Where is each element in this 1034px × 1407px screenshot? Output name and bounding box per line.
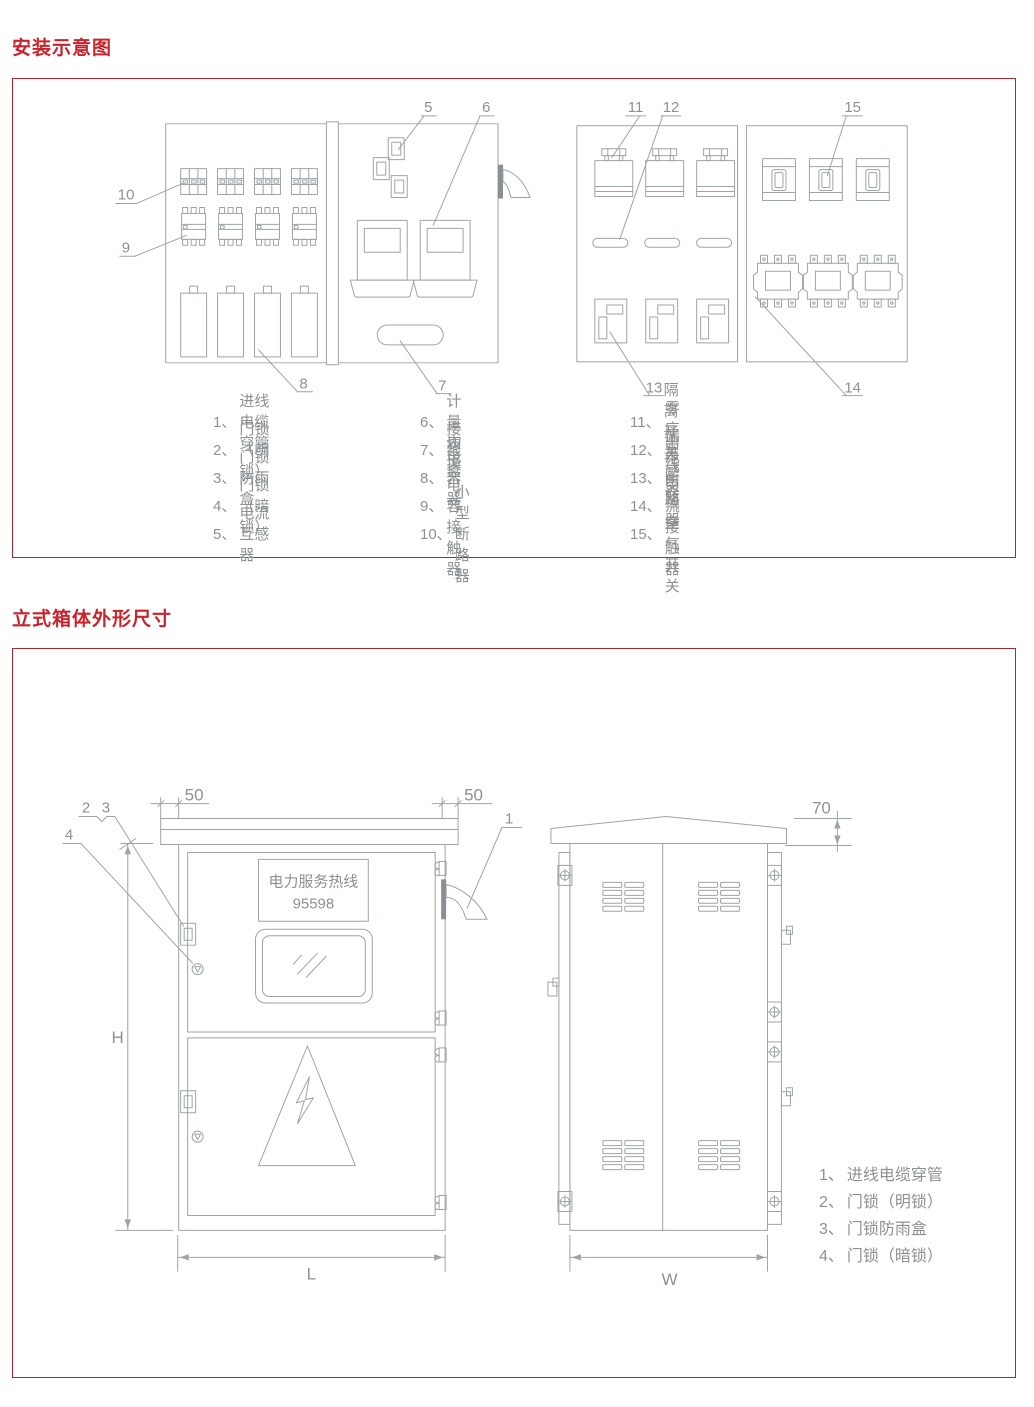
lower-door <box>188 1038 436 1216</box>
current-transformer-icon <box>373 158 389 180</box>
capacitor-contactor-icon <box>219 207 243 245</box>
louver-vent-icon <box>603 1141 644 1170</box>
dim-length: L <box>307 1264 316 1283</box>
callout-9: 9 <box>122 239 130 256</box>
door-hinge-icon <box>435 1048 446 1062</box>
energy-meter-icon <box>413 220 477 297</box>
mini-breaker-icon <box>181 169 207 195</box>
catalog-page: 安装示意图 <box>0 0 1034 1407</box>
hotline-text: 电力服务热线 <box>269 873 359 890</box>
capacitor-icon <box>218 286 244 357</box>
service-hotline-plate: 电力服务热线 95598 <box>259 859 369 921</box>
callout-7: 7 <box>438 378 446 395</box>
air-switch-icon <box>763 159 796 201</box>
isolator-switch-icon <box>595 149 633 197</box>
ac-contactor-icon <box>754 255 803 307</box>
leakage-breaker-icon <box>646 299 678 343</box>
warning-triangle-icon <box>259 1046 356 1166</box>
callout-12: 12 <box>663 99 680 116</box>
cabinet-roof-side <box>551 817 787 844</box>
cable-entry-pipe-icon <box>441 879 487 919</box>
energy-meter-icon <box>350 220 414 297</box>
zero-sequence-ct-icon <box>697 238 732 247</box>
callout-6: 6 <box>482 99 490 116</box>
cabinet-side-view <box>548 817 793 1231</box>
legend-item: 2、门锁（明锁） <box>819 1186 943 1213</box>
section2-title: 立式箱体外形尺寸 <box>12 604 172 631</box>
left-hinge-strip <box>559 852 570 1224</box>
door-hinge-icon <box>435 861 446 875</box>
isolator-switch-icon <box>646 149 684 197</box>
louver-vent-icon <box>603 882 644 911</box>
door-hinge-icon <box>435 1195 446 1209</box>
current-transformer-icon <box>388 138 404 160</box>
cabinet-legend: 1、进线电缆穿管 2、门锁（明锁） 3、门锁防雨盒 4、门锁（暗锁） <box>819 1159 943 1267</box>
zero-sequence-ct-icon <box>593 238 628 247</box>
door-latch-icon <box>781 926 792 944</box>
callout-4: 4 <box>65 826 73 843</box>
right-hinge-strip <box>767 852 781 1224</box>
capacitor-icon <box>181 286 207 357</box>
dim-width: W <box>662 1270 678 1289</box>
dim-height: H <box>112 1028 124 1047</box>
legend-column-2: 6、计量表 7、接线盒 8、电容器 9、切换电容接触器 10、小型断路器 <box>420 407 470 547</box>
leakage-breaker-icon <box>595 299 627 343</box>
switch-outgoing-cabinet <box>577 126 907 362</box>
diagram1-callouts: 10 9 8 5 6 7 11 12 15 <box>116 99 863 397</box>
install-diagram: 10 9 8 5 6 7 11 12 15 <box>13 79 1015 557</box>
mini-breaker-icon <box>218 169 244 195</box>
cabinet-drawing: 电力服务热线 95598 <box>13 649 1015 1377</box>
callout-11: 11 <box>628 99 644 116</box>
install-diagram-panel: 10 9 8 5 6 7 11 12 15 <box>12 78 1016 558</box>
capacitor-contactor-icon <box>292 207 316 245</box>
side-hinge-icon <box>767 865 781 885</box>
callout-8: 8 <box>299 376 307 393</box>
ac-contactor-icon <box>803 255 852 307</box>
ac-contactor-icon <box>853 255 902 307</box>
isolator-switch-icon <box>697 149 735 197</box>
side-view-dimensions: 70 W <box>570 799 851 1290</box>
legend-item: 4、门锁（暗锁） <box>819 1240 943 1267</box>
cabinet-side-body <box>570 843 768 1230</box>
dim-50-right: 50 <box>464 786 483 805</box>
current-transformer-icon <box>391 176 407 198</box>
louver-vent-icon <box>699 882 740 911</box>
cable-entry-pipe-icon <box>498 165 530 199</box>
side-hinge-icon <box>767 1002 781 1022</box>
capacitor-icon <box>291 286 317 357</box>
legend-item: 1、进线电缆穿管 <box>819 1159 943 1186</box>
louver-vent-icon <box>699 1141 740 1170</box>
capacitor-contactor-icon <box>256 207 280 245</box>
callout-10: 10 <box>118 187 135 204</box>
lower-door-hidden-lock <box>192 1131 203 1142</box>
dim-50-left: 50 <box>185 786 204 805</box>
callout-5: 5 <box>424 99 432 116</box>
callout-2: 2 <box>82 800 90 817</box>
callout-3: 3 <box>102 800 110 817</box>
callout-14: 14 <box>844 380 861 397</box>
junction-box-icon <box>377 325 443 345</box>
legend-item: 5、电流互感器 <box>213 519 269 547</box>
callout-1: 1 <box>505 811 513 828</box>
air-switch-icon <box>856 159 889 201</box>
hotline-number: 95598 <box>293 895 335 912</box>
air-switch-icon <box>809 159 842 201</box>
legend-column-3: 11、隔离开关 12、零序互感器 13、漏电断路器 14、出线交流接触器 15、… <box>630 407 680 547</box>
legend-item: 3、门锁防雨盒 <box>819 1213 943 1240</box>
door-hinge-icon <box>435 1011 446 1025</box>
cabinet-dimensions-panel: 电力服务热线 95598 <box>12 648 1016 1378</box>
leakage-breaker-icon <box>697 299 729 343</box>
capacitor-icon <box>255 286 281 357</box>
legend-item: 15、出线空气开关 <box>630 519 680 547</box>
side-hinge-icon <box>767 1042 781 1062</box>
cabinet-front-view: 电力服务热线 95598 <box>161 819 487 1231</box>
cabinet-divider <box>326 122 338 365</box>
door-latch-icon <box>548 978 559 996</box>
side-hinge-icon <box>767 1192 781 1212</box>
dim-roof-rise: 70 <box>812 799 831 818</box>
legend-column-1: 1、进线电缆穿管 2、门锁（明锁） 3、门锁防雨盒 4、门锁（暗锁） 5、电流互… <box>213 407 269 547</box>
upper-door-hidden-lock <box>192 964 203 975</box>
meter-window <box>256 929 373 1003</box>
zero-sequence-ct-icon <box>645 238 680 247</box>
mini-breaker-icon <box>291 169 317 195</box>
mini-breaker-icon <box>255 169 281 195</box>
capacitor-contactor-icon <box>182 207 206 245</box>
legend-item: 10、小型断路器 <box>420 519 470 547</box>
cabinet-roof-cap <box>161 819 458 845</box>
meter-capacitor-cabinet <box>166 122 530 365</box>
section1-title: 安装示意图 <box>12 33 112 60</box>
callout-15: 15 <box>844 99 861 116</box>
door-latch-icon <box>781 1088 792 1106</box>
